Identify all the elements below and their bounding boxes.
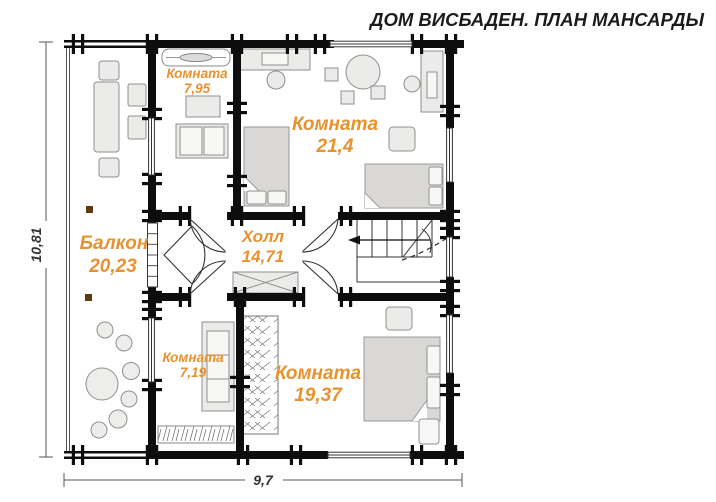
dimension-width: 9,7 [64,472,462,488]
room-214-name: Комната [292,114,379,135]
room-1937-name: Комната [275,363,362,384]
door [302,219,338,252]
balcony-name: Балкон [80,233,149,254]
window [447,128,453,182]
wardrobe [242,316,278,434]
window [149,318,155,382]
chair [404,76,420,92]
room-795-name: Комната [166,66,228,81]
room-1937-area: 19,37 [294,385,343,406]
dimension-width-value: 9,7 [253,472,274,488]
armchair [389,127,415,151]
balcony-stool [128,84,146,106]
room-214-area: 21,4 [316,136,354,157]
window [149,118,155,175]
balcony-door [148,223,205,287]
balcony-stones [86,322,140,438]
room-719-area: 7,19 [180,365,207,380]
balcony-post [85,294,92,301]
dimension-height: 10,81 [28,42,53,457]
balcony-railing [67,48,70,451]
hall-name: Холл [241,227,285,246]
floor-plan-drawing: ДОМ ВИСБАДЕН. ПЛАН МАНСАРДЫ [0,0,716,502]
window [328,452,410,458]
dresser-mirror [180,54,212,62]
single-bed [365,164,443,208]
single-bed [244,127,289,206]
room-719-furniture [158,322,234,443]
room-795-area: 7,95 [184,81,211,96]
round-table [346,55,380,89]
balcony-area: 20,23 [88,256,137,277]
door [190,261,226,294]
room-719-name: Комната [162,350,224,365]
table [186,96,220,117]
door [302,261,338,294]
stool [371,86,385,99]
floor-plan-page: ДОМ ВИСБАДЕН. ПЛАН МАНСАРДЫ [0,0,716,502]
nightstand [386,307,412,330]
staircase [348,220,447,282]
balcony-chair [99,61,119,80]
double-bed [364,337,440,421]
balcony-post [86,206,93,213]
balcony-table [94,82,119,152]
window [447,315,453,373]
dimension-height-value: 10,81 [28,227,44,262]
stool [325,68,338,81]
door [190,219,226,252]
window [447,237,453,277]
balcony-chair [99,158,119,177]
hall-area: 14,71 [242,247,285,266]
window [330,41,412,47]
stool [341,91,354,104]
rug [158,426,234,443]
page-title: ДОМ ВИСБАДЕН. ПЛАН МАНСАРДЫ [368,9,704,30]
chair [267,71,285,89]
hall-wardrobe [233,272,298,293]
nightstand [419,419,439,444]
